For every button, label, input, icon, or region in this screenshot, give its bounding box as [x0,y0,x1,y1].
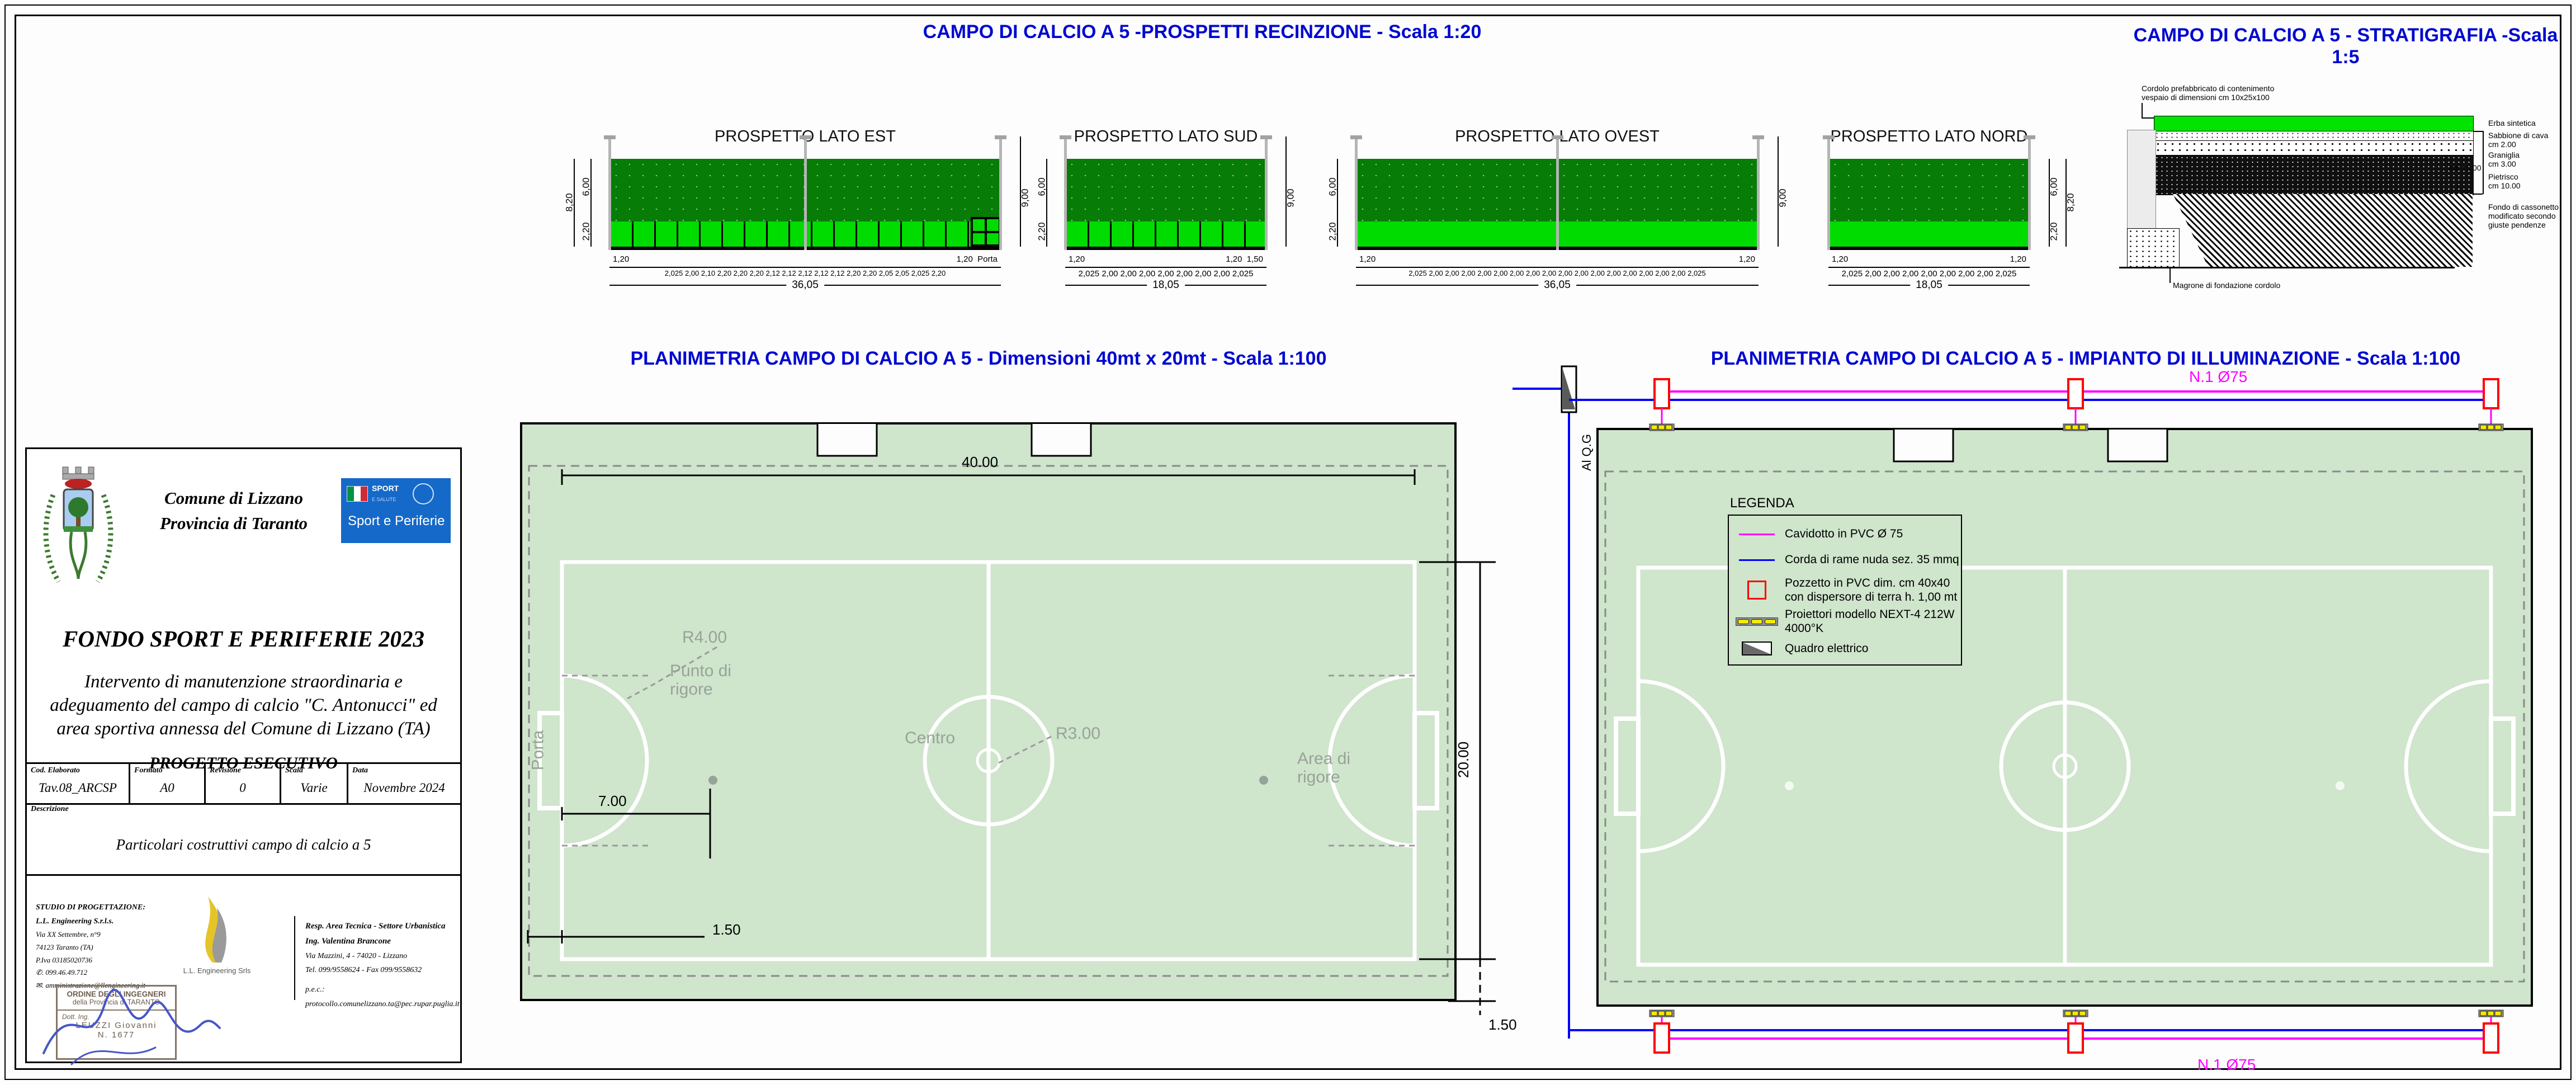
studio-name: L.L. Engineering S.r.l.s. [36,915,176,929]
label-graniglia: Graniglia cm 3.00 [2488,150,2520,168]
descrizione-section: Descrizione Particolari costruttivi camp… [27,801,460,876]
col-data: Data [352,766,368,775]
dim-7: 7.00 [598,792,627,810]
label-totale: cm 15.00 [2449,163,2482,172]
project-description: Intervento di manutenzione straordinaria… [32,670,455,741]
pole-icon [1265,136,1268,250]
elevation-east: PROSPETTO LATO EST 8,20 6,00 2,20 9,00 1… [609,128,1001,299]
layer-erba-sintetica [2154,116,2474,132]
label-fondo: Fondo di cassonetto modificato secondo g… [2488,202,2559,229]
corda-line-icon [1739,559,1775,561]
logo-text: Sport e Periferie [341,504,451,529]
elevation-south: PROSPETTO LATO SUD 6,00 2,20 9,00 1,20 1… [1065,128,1266,299]
resp-name: Ing. Valentina Brancone [305,934,456,949]
legend-item: Corda di rame nuda sez. 35 mmq [1729,547,1961,573]
studio-city: 74123 Taranto (TA) [36,941,176,954]
layer-pietrisco [2154,155,2474,195]
field-plan: Porta Punto di rigore Centro R3.00 R4.00… [520,422,1549,1071]
data-value: Novembre 2024 [348,781,460,795]
pole-icon [608,136,611,250]
ll-engineering-logo [183,891,245,964]
stemma-comune-icon [39,461,117,601]
pozzetto-icon [2063,379,2088,431]
studio-piva: P.Iva 03185020736 [36,954,176,967]
resp-address: Via Mazzini, 4 - 74020 - Lizzano [305,949,456,963]
studio-address: Via XX Settembre, n°9 [36,928,176,941]
field-notch [1894,430,1953,461]
legend-item: Pozzetto in PVC dim. cm 40x40 con disper… [1729,573,1961,607]
revisione-value: 0 [206,781,280,795]
label-punto-di-rigore: Punto di rigore [670,662,731,699]
label-magrone: Magrone di fondazione cordolo [2173,281,2341,290]
label-r3: R3.00 [1056,724,1100,743]
resp-pec: p.e.c.: protocollo.comunelizzano.ta@pec.… [305,983,456,1011]
dim-pole-height: 9,00 [1019,188,1031,207]
pozzetto-icon [2479,379,2503,431]
magrone-block [2127,228,2180,268]
col-revisione: Revisione [210,766,241,775]
layer-fondo-cassonetto [2154,194,2473,267]
scala-value: Varie [281,781,347,795]
label-erba: Erba sintetica [2488,119,2536,128]
proiettore-icon [1736,617,1778,626]
penalty-spot-right [1259,776,1268,785]
col-cod-elaborato: Cod. Elaborato [31,766,80,775]
label-cavidotto-bottom: N.1 Ø75 [2197,1056,2256,1074]
field-notch [2108,430,2167,461]
dim-150-left: 1.50 [712,921,741,938]
col-scala: Scala [285,766,303,775]
signature-scribble [38,969,223,1070]
dim-total-width: 36,05 [786,279,824,291]
dim-40: 40.00 [962,454,998,471]
pole-icon [1827,136,1830,250]
studio-title: STUDIO DI PROGETTAZIONE: [36,901,176,915]
resp-phone: Tel. 099/9558624 - Fax 099/9558632 [305,963,456,977]
dim-module: 1,20 [957,254,973,264]
pole-icon [1556,136,1559,250]
sport-e-periferie-logo: SPORT E SALUTE Sport e Periferie [341,478,451,543]
label-area-di-rigore: Area di rigore [1297,749,1350,786]
legend-item: Cavidotto in PVC Ø 75 [1729,521,1961,547]
cordolo-block [2127,130,2156,229]
stratigraphy-section: Cordolo prefabbricato di contenimento ve… [2119,84,2573,319]
pole-icon [2028,136,2031,250]
pole-icon [1064,136,1067,250]
pole-icon [804,136,807,250]
dim-extra: Porta [977,254,998,264]
title-stratigrafia: CAMPO DI CALCIO A 5 - STRATIGRAFIA -Scal… [2119,25,2572,68]
formato-value: A0 [130,781,204,795]
comune-name: Comune di Lizzano [122,486,346,511]
lighting-plan-drawing [1512,347,2575,1082]
pozzetto-icon [1747,581,1766,600]
layer-graniglia [2154,140,2474,156]
legend-item: Quadro elettrico [1729,635,1961,661]
dim-top-height: 6,00 [581,177,592,196]
title-planimetria: PLANIMETRIA CAMPO DI CALCIO A 5 - Dimens… [559,348,1398,370]
label-porta: Porta [528,730,547,771]
resp-title: Resp. Area Tecnica - Settore Urbanistica [305,919,456,934]
signatures-section: STUDIO DI PROGETTAZIONE: L.L. Engineerin… [27,874,460,1062]
pole-icon [1355,136,1358,250]
cod-elaborato-value: Tav.08_ARCSP [27,781,129,795]
pozzetto-icon [1649,379,1674,431]
quadro-elettrico-icon [1742,641,1772,655]
elevation-west: PROSPETTO LATO OVEST 6,00 2,20 9,00 1,20… [1356,128,1759,299]
title-block: Comune di Lizzano Provincia di Taranto S… [25,447,462,1063]
pole-icon [1757,136,1760,250]
legend-title: LEGENDA [1730,496,1794,511]
dim-20: 20.00 [1455,742,1472,778]
fence-gate [971,217,1001,247]
elevation-north: PROSPETTO LATO NORD 6,00 8,20 2,20 1,20 … [1828,128,2030,299]
label-centro: Centro [905,729,955,747]
label-al-qg: Al Q.G [1580,376,1594,471]
divider [294,916,295,1000]
label-sabbione: Sabbione di cava cm 2.00 [2488,131,2548,149]
project-fund-title: FONDO SPORT E PERIFERIE 2023 [27,625,460,652]
dim-bottom-height: 2,20 [581,222,592,240]
legend-box: LEGENDA Cavidotto in PVC Ø 75 Corda di r… [1728,515,1962,666]
descrizione-label: Descrizione [31,805,69,814]
label-cordolo: Cordolo prefabbricato di contenimento ve… [2142,84,2320,102]
elevation-north-title: PROSPETTO LATO NORD [1828,128,2030,147]
col-formato: Formato [134,766,163,775]
label-r4: R4.00 [682,628,727,647]
metadata-table: Cod. Elaborato Tav.08_ARCSP Formato A0 R… [27,762,460,805]
cavidotto-line-icon [1739,534,1775,535]
provincia-name: Provincia di Taranto [122,511,346,536]
dim-module: 1,20 [613,254,629,267]
label-cavidotto-top: N.1 Ø75 [2189,368,2247,386]
dim-total-height: 8,20 [564,193,575,211]
title-prospetti: CAMPO DI CALCIO A 5 -PROSPETTI RECINZION… [839,21,1566,43]
label-pietrisco: Pietrisco cm 10.00 [2488,172,2521,190]
legend-item: Proiettori modello NEXT-4 212W 4000°K [1729,607,1961,635]
presidenza-emblem-icon [413,483,434,504]
field-notch [1032,424,1091,456]
elevation-south-title: PROSPETTO LATO SUD [1065,128,1266,147]
pole-icon [999,136,1002,250]
lighting-plan: Al Q.G N.1 Ø75 N.1 Ø75 LEGENDA Cavidotto… [1512,347,2575,1082]
descrizione-value: Particolari costruttivi campo di calcio … [27,836,460,853]
penalty-spot-left [708,776,717,785]
italia-flag-icon [347,486,368,502]
field-notch [817,424,877,456]
field-plan-drawing [520,422,1549,1071]
